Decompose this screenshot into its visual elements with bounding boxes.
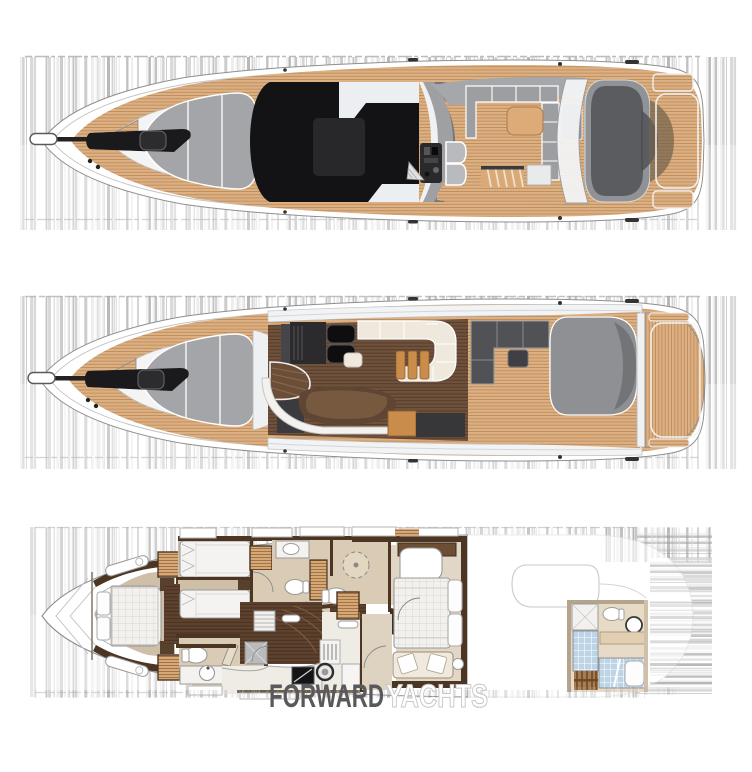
svg-text:YACHTS: YACHTS	[386, 678, 488, 714]
svg-text:FORWARD: FORWARD	[269, 678, 384, 714]
